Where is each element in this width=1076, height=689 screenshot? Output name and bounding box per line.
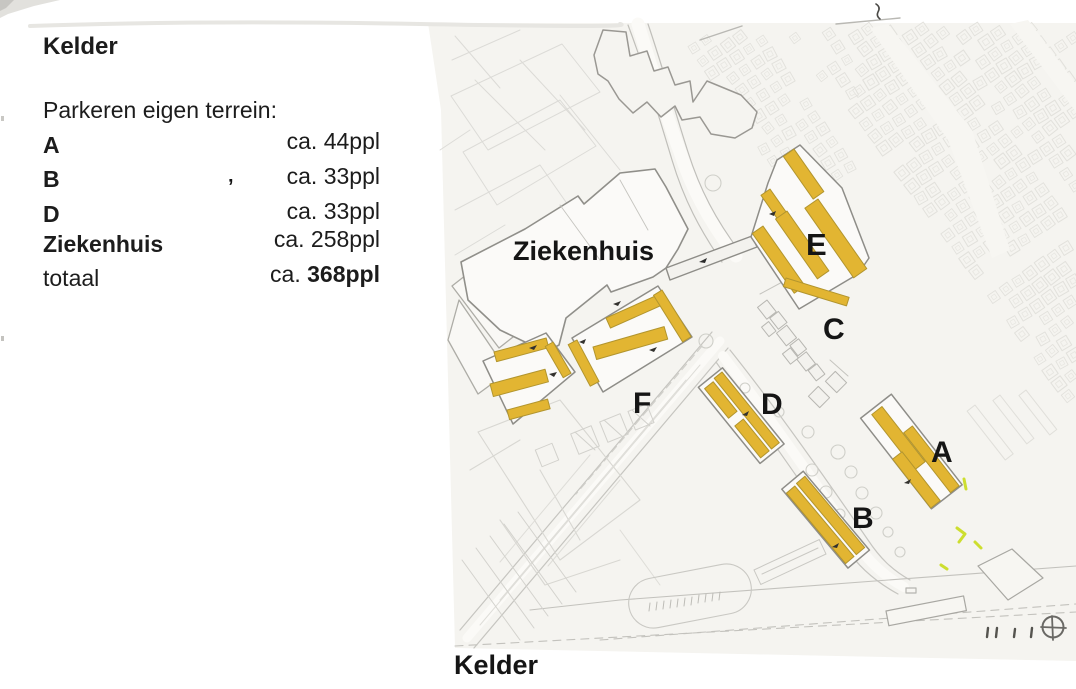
svg-text:Kelder: Kelder — [454, 650, 539, 680]
svg-text:D: D — [761, 388, 783, 421]
svg-text:Ziekenhuis: Ziekenhuis — [513, 236, 654, 266]
svg-text:B: B — [852, 502, 874, 535]
svg-text:E: E — [806, 227, 827, 262]
svg-text:A: A — [931, 436, 953, 469]
svg-text:F: F — [633, 387, 651, 420]
svg-text:C: C — [823, 313, 845, 346]
